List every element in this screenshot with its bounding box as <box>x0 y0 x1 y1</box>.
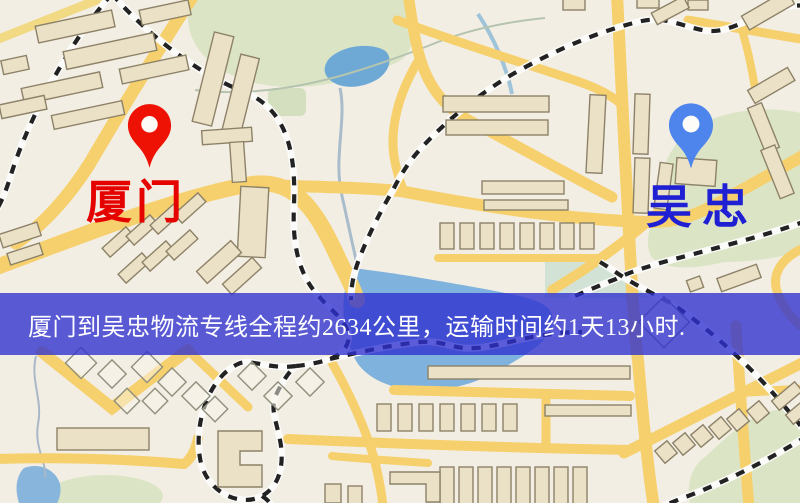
route-info-banner: 厦门到吴忠物流专线全程约2634公里，运输时间约1天13小时. <box>0 293 800 355</box>
destination-city-label: 吴忠 <box>646 184 758 230</box>
route-info-text: 厦门到吴忠物流专线全程约2634公里，运输时间约1天13小时. <box>28 307 686 342</box>
map-artwork <box>0 0 800 503</box>
origin-city-label: 厦门 <box>86 179 186 225</box>
origin-pin-icon <box>127 101 172 171</box>
map-container: 厦门 吴忠 厦门到吴忠物流专线全程约2634公里，运输时间约1天13小时. <box>0 0 800 503</box>
destination-pin-icon <box>668 101 714 171</box>
